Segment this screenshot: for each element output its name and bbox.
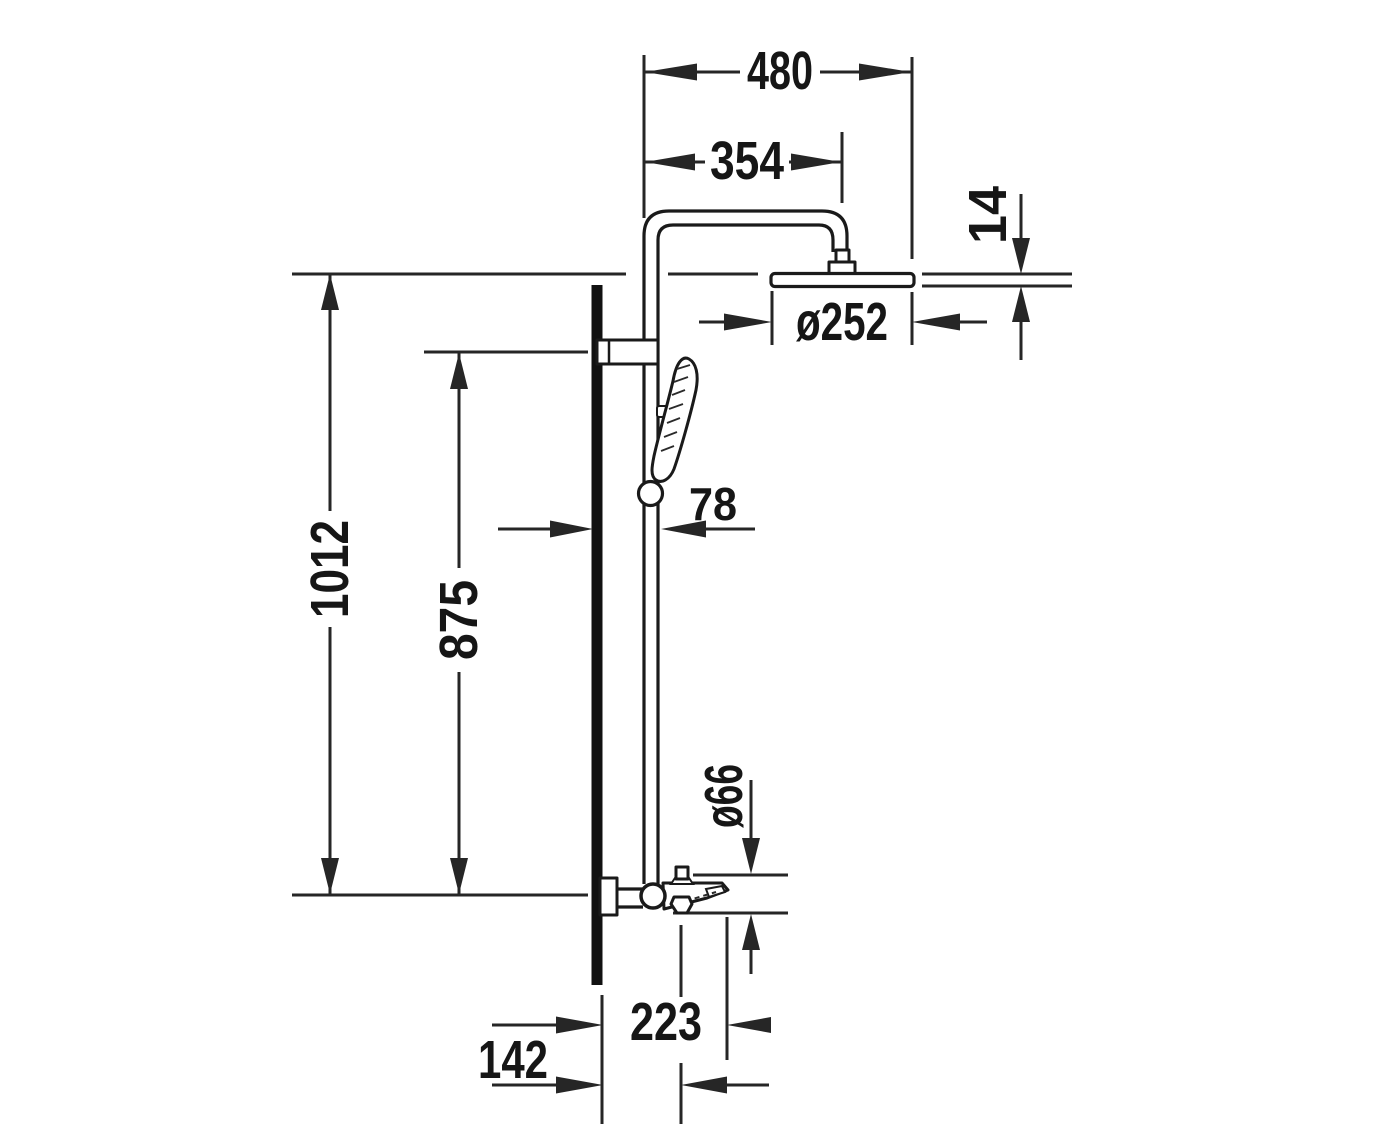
arrowhead-down bbox=[450, 858, 468, 894]
dim-label-mixer-diameter: ø66 bbox=[694, 764, 754, 828]
arrowhead-up bbox=[450, 353, 468, 389]
mixer-wall-bracket bbox=[600, 878, 617, 915]
overhead-shower-head bbox=[771, 274, 914, 287]
dimension-head-diameter: ø252 bbox=[699, 292, 987, 352]
dim-label-overall-height: 1012 bbox=[300, 520, 360, 618]
arrowhead-right bbox=[859, 64, 911, 81]
mixer-knob bbox=[641, 884, 665, 908]
arrowhead-up bbox=[1012, 286, 1030, 322]
arrowhead-left-pointing bbox=[727, 1017, 771, 1033]
dim-label-head-diameter: ø252 bbox=[796, 292, 888, 352]
arrowhead-right-pointing bbox=[550, 521, 593, 538]
arrowhead-left-pointing bbox=[912, 314, 960, 331]
arrowhead-right-pointing bbox=[556, 1077, 603, 1094]
arrowhead-left-pointing bbox=[681, 1077, 727, 1094]
dimension-arm-projection: 354 bbox=[645, 131, 841, 191]
dim-label-rail-height: 875 bbox=[429, 580, 489, 660]
dim-label-rail-wall-offset: 78 bbox=[689, 478, 737, 530]
arrowhead-right-pointing bbox=[556, 1017, 603, 1034]
arrowhead-left bbox=[645, 154, 695, 171]
shower-system-dimension-drawing: 480 354 14 ø252 78 bbox=[0, 0, 1400, 1146]
arrowhead-left bbox=[645, 64, 697, 81]
arrowhead-down bbox=[321, 858, 339, 894]
dim-label-head-thickness: 14 bbox=[958, 186, 1018, 244]
dimension-arm-width: 480 bbox=[645, 41, 911, 101]
reference-lines bbox=[292, 55, 1072, 1124]
dim-label-arm-width: 480 bbox=[747, 41, 813, 101]
arrowhead-up bbox=[742, 914, 760, 950]
technical-drawing-page: 480 354 14 ø252 78 bbox=[0, 0, 1400, 1146]
dimension-overall-height: 1012 bbox=[300, 274, 360, 894]
arrowhead-right-pointing bbox=[724, 314, 772, 331]
slider-knob bbox=[639, 482, 663, 506]
mixer-handle bbox=[676, 867, 688, 879]
dimension-outlet-offset: 142 bbox=[478, 1030, 769, 1094]
dim-label-arm-projection: 354 bbox=[710, 131, 784, 191]
arrowhead-right bbox=[791, 154, 841, 171]
dim-label-outlet-offset: 142 bbox=[478, 1030, 548, 1090]
dimension-rail-height: 875 bbox=[429, 353, 489, 894]
arrowhead-down bbox=[742, 838, 760, 874]
dim-label-spout-reach: 223 bbox=[630, 992, 702, 1052]
arrowhead-up bbox=[321, 274, 339, 310]
dimension-rail-wall-offset: 78 bbox=[498, 478, 755, 538]
diverter-knob bbox=[671, 897, 692, 913]
wall-bracket-top bbox=[597, 340, 658, 364]
